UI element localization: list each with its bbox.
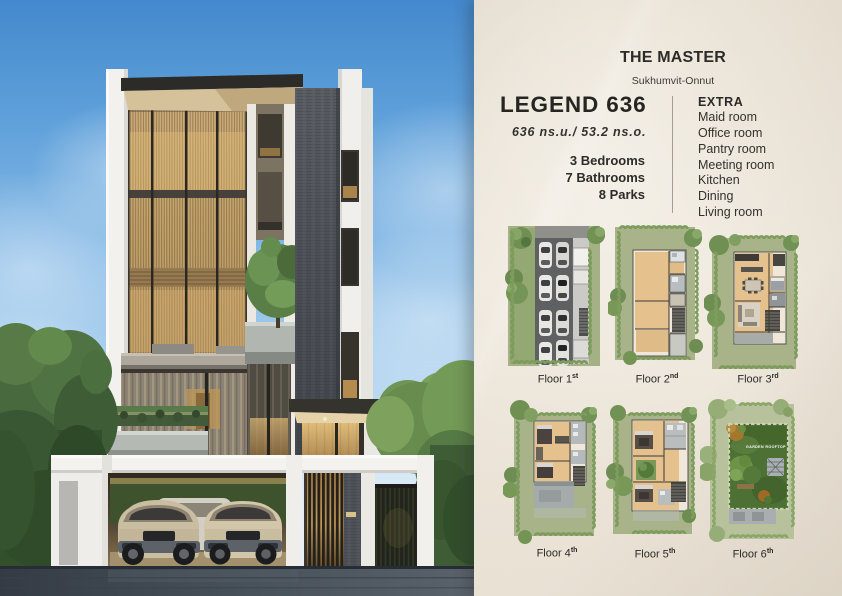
svg-text:GARDEN ROOFTOP: GARDEN ROOFTOP	[746, 445, 786, 449]
